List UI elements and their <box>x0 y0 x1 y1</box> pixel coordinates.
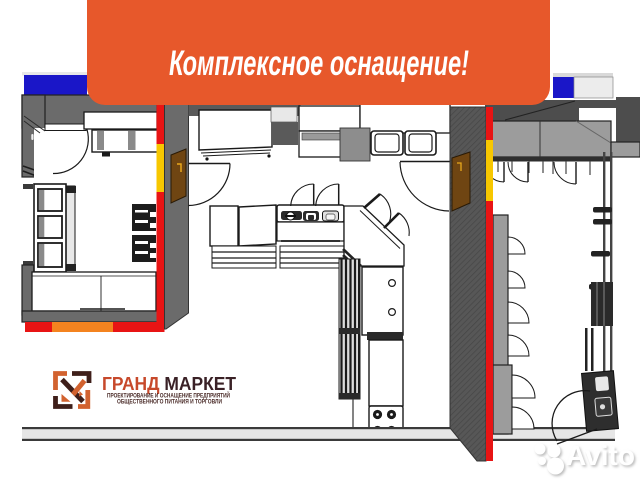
svg-text:Avito: Avito <box>566 440 635 471</box>
svg-text:ГРАНД МАРКЕТ: ГРАНД МАРКЕТ <box>102 374 236 394</box>
svg-text:ОБЩЕСТВЕННОГО ПИТАНИЯ И ТОРГОВ: ОБЩЕСТВЕННОГО ПИТАНИЯ И ТОРГОВЛИ <box>117 399 222 406</box>
svg-text:Комплексное оснащение!: Комплексное оснащение! <box>169 44 469 83</box>
